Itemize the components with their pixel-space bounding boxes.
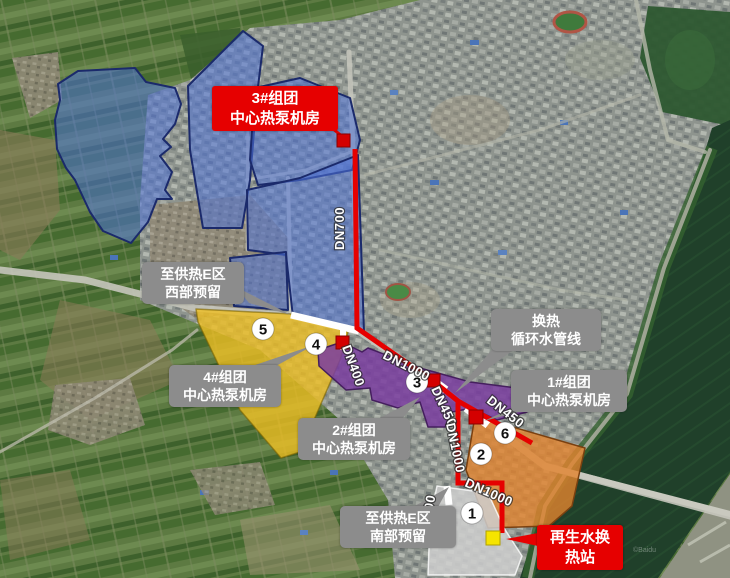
callout-reclaimed-water-station: 再生水换 热站 <box>537 525 623 570</box>
callout-line: 2#组团 <box>303 421 405 439</box>
callout-line: 至供热E区 <box>147 265 239 283</box>
pump-room-marker-1 <box>469 410 483 424</box>
callout-group2-pump-room: 2#组团 中心热泵机房 <box>298 418 410 460</box>
callout-line: 南部预留 <box>345 527 451 545</box>
callout-line: 再生水换 <box>542 528 618 548</box>
callout-line: 循环水管线 <box>496 330 596 348</box>
callout-line: 至供热E区 <box>345 509 451 527</box>
callout-west-reserve: 至供热E区 西部预留 <box>142 262 244 304</box>
station-number-4: 4 <box>305 333 327 355</box>
callout-south-reserve: 至供热E区 南部预留 <box>340 506 456 548</box>
satellite-map: 5 4 3 6 2 1 DN700 DN1000 DN400 DN450 DN4… <box>0 0 730 578</box>
callout-group1-pump-room: 1#组团 中心热泵机房 <box>511 370 627 412</box>
reclaimed-water-station-marker <box>486 531 500 545</box>
station-number-5: 5 <box>252 318 274 340</box>
svg-text:6: 6 <box>501 425 509 442</box>
station-number-1: 1 <box>461 502 483 524</box>
station-number-2: 2 <box>470 443 492 465</box>
callout-line: 1#组团 <box>516 373 622 391</box>
pump-room-marker-3 <box>337 134 350 147</box>
svg-text:4: 4 <box>312 336 321 353</box>
callout-line: 中心热泵机房 <box>516 391 622 409</box>
map-provider-watermark: ©Baidu <box>633 547 656 554</box>
callout-line: 换热 <box>496 312 596 330</box>
callout-group3-pump-room: 3#组团 中心热泵机房 <box>212 86 338 131</box>
callout-line: 西部预留 <box>147 283 239 301</box>
callout-line: 中心热泵机房 <box>303 439 405 457</box>
callout-line: 3#组团 <box>217 89 333 109</box>
pipe-label-dn700-north: DN700 <box>332 207 347 250</box>
callout-line: 中心热泵机房 <box>217 109 333 129</box>
svg-text:2: 2 <box>477 446 485 463</box>
svg-text:1: 1 <box>468 505 476 522</box>
callout-line: 中心热泵机房 <box>174 386 276 404</box>
callout-group4-pump-room: 4#组团 中心热泵机房 <box>169 365 281 407</box>
callout-line: 4#组团 <box>174 368 276 386</box>
callout-line: 热站 <box>542 548 618 568</box>
map-canvas: 5 4 3 6 2 1 DN700 DN1000 DN400 DN450 DN4… <box>0 0 730 578</box>
svg-text:5: 5 <box>259 321 267 338</box>
callout-heat-exchange-pipeline: 换热 循环水管线 <box>491 309 601 351</box>
